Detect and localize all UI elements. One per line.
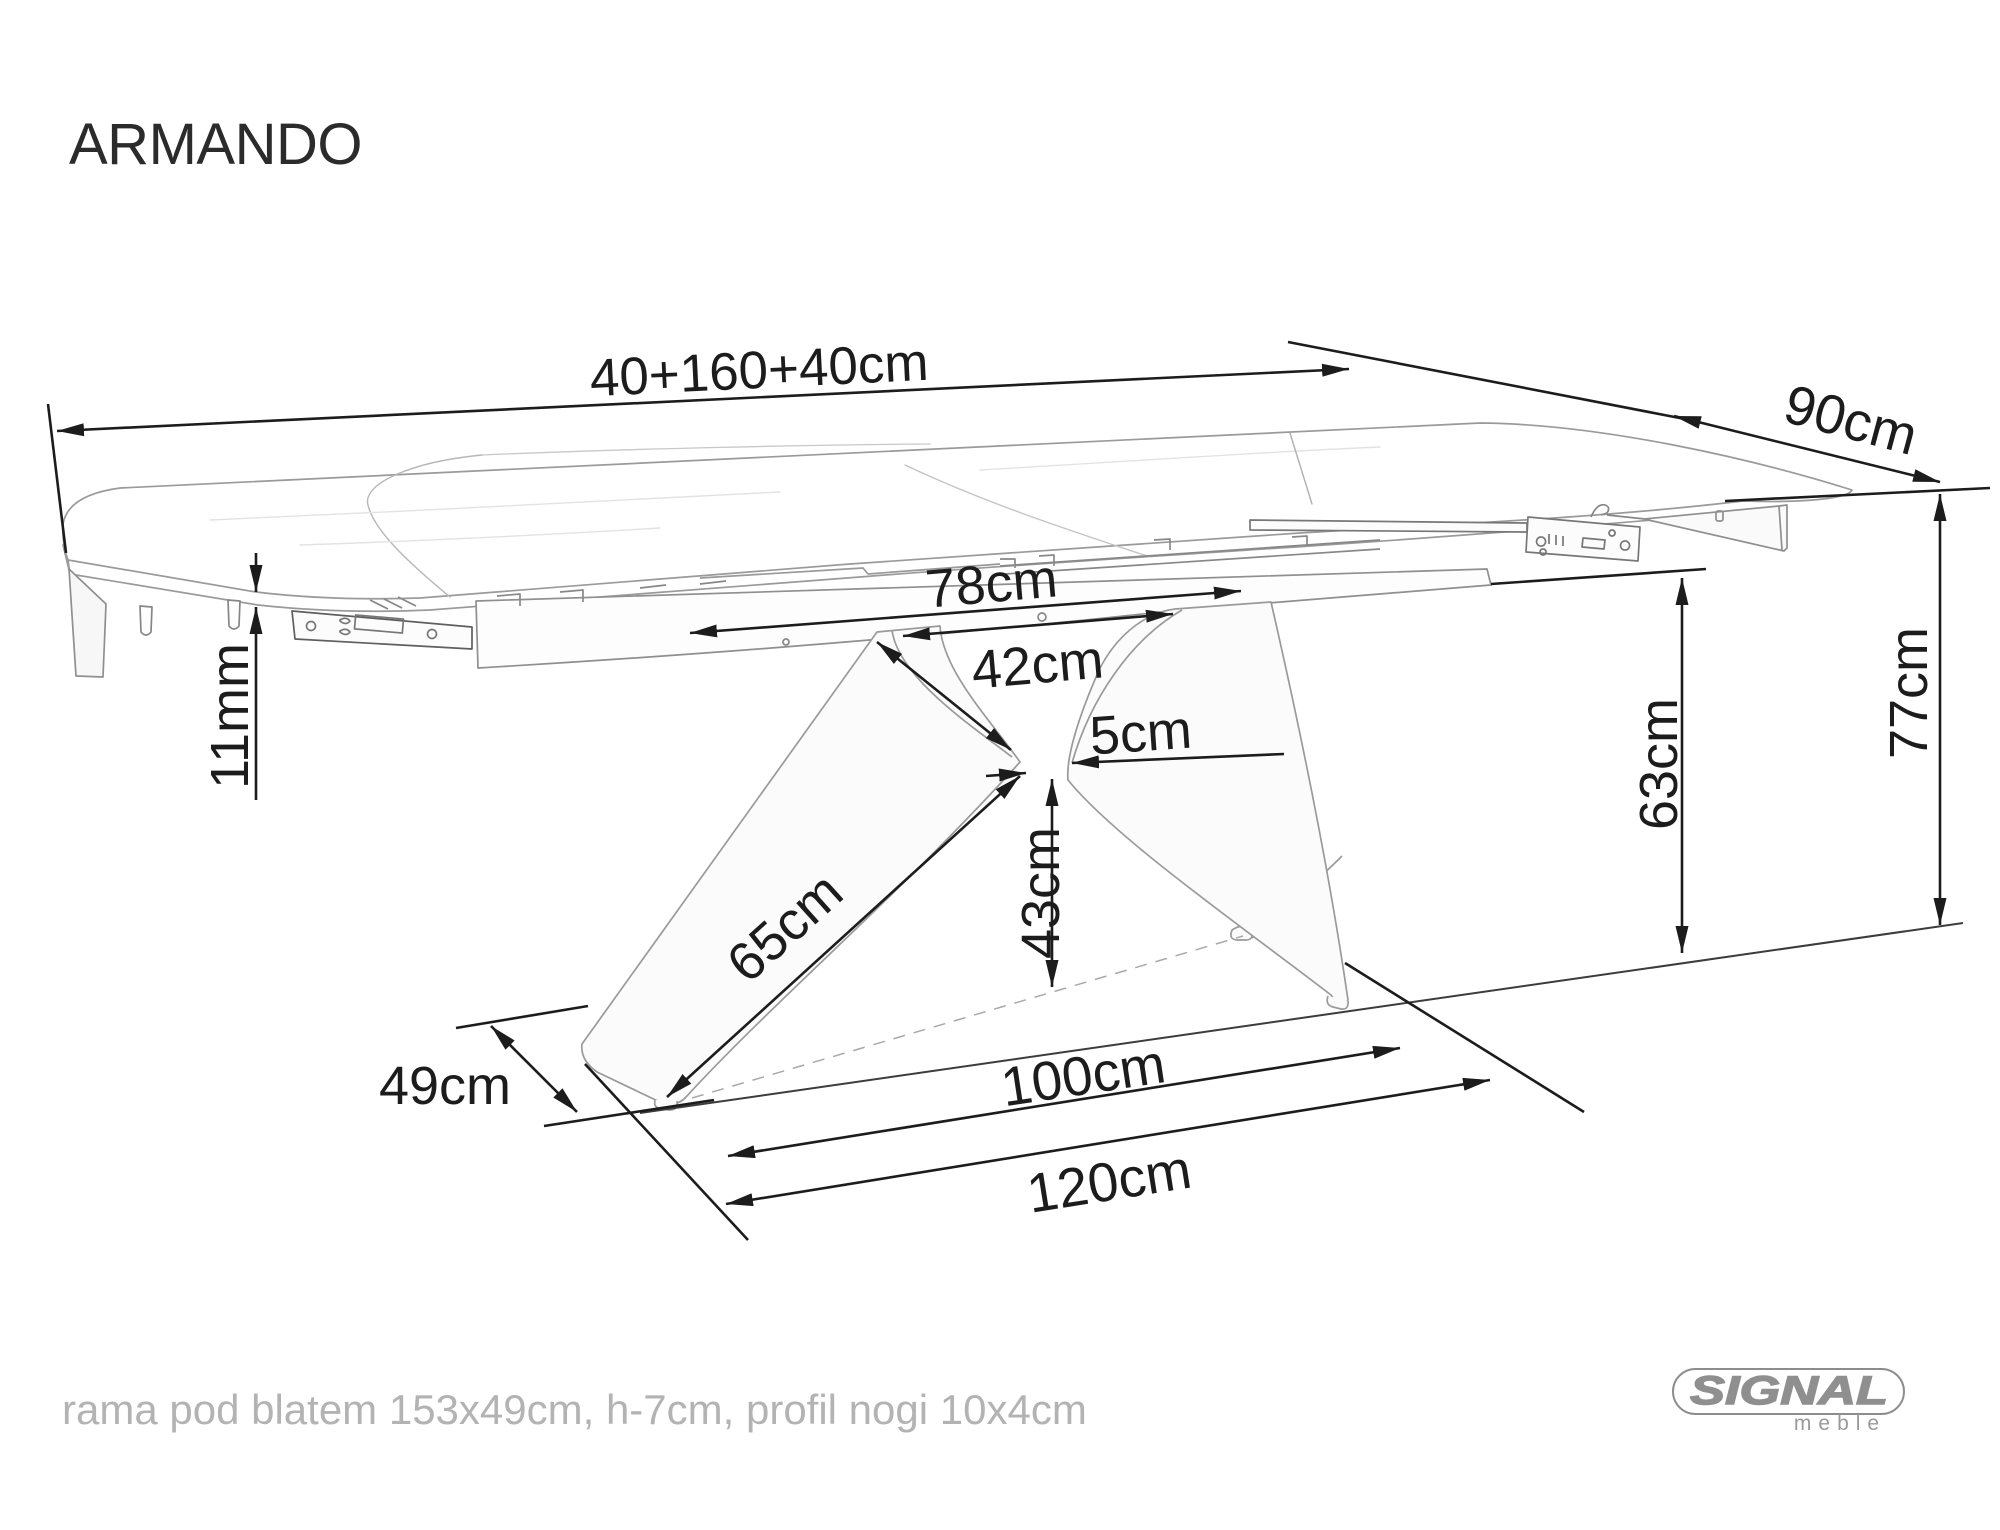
svg-text:63cm: 63cm xyxy=(1629,698,1689,830)
svg-text:rama pod blatem 153x49cm, h-7c: rama pod blatem 153x49cm, h-7cm, profil … xyxy=(62,1386,1087,1433)
svg-text:49cm: 49cm xyxy=(379,1056,511,1116)
svg-text:40+160+40cm: 40+160+40cm xyxy=(588,333,929,408)
svg-text:meble: meble xyxy=(1794,1412,1886,1435)
svg-text:ARMANDO: ARMANDO xyxy=(69,112,362,177)
svg-text:90cm: 90cm xyxy=(1778,372,1924,467)
svg-text:SIGNAL: SIGNAL xyxy=(1690,1369,1888,1413)
svg-text:42cm: 42cm xyxy=(969,629,1106,700)
svg-text:77cm: 77cm xyxy=(1879,627,1939,759)
svg-text:43cm: 43cm xyxy=(1011,827,1071,959)
svg-text:11mm: 11mm xyxy=(200,643,260,789)
svg-text:100cm: 100cm xyxy=(997,1032,1170,1118)
svg-text:78cm: 78cm xyxy=(923,548,1060,619)
svg-text:5cm: 5cm xyxy=(1088,700,1194,767)
